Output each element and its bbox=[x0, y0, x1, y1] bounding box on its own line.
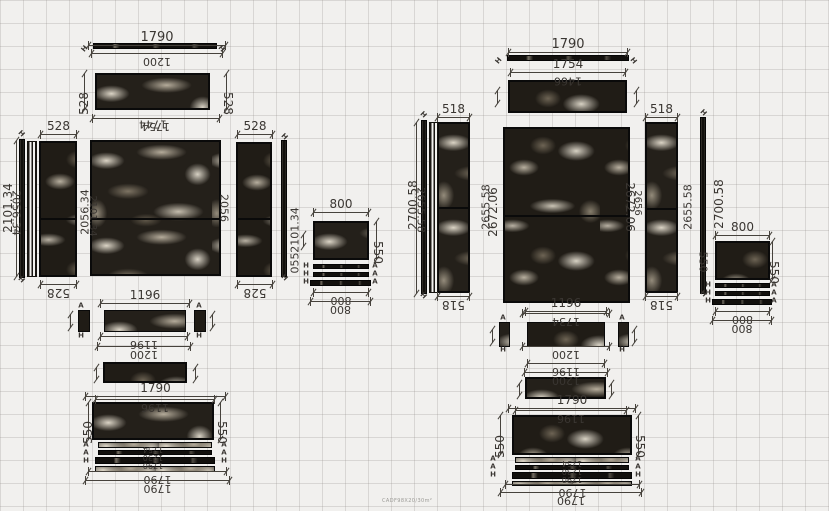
section-marker: A bbox=[83, 450, 88, 457]
dim-line bbox=[515, 410, 627, 411]
edge-strip[interactable] bbox=[313, 272, 369, 277]
section-marker: A bbox=[372, 271, 377, 278]
marble-panel[interactable] bbox=[39, 141, 77, 277]
dim-line bbox=[522, 346, 610, 347]
dimension-text: 1790 bbox=[562, 475, 582, 483]
dimension-text: 1466 bbox=[554, 76, 582, 87]
dim-line bbox=[500, 492, 642, 493]
dimension-tick-v bbox=[199, 314, 225, 328]
dim-line bbox=[524, 372, 608, 373]
dimension-text: 1230 bbox=[143, 453, 163, 461]
dimension-label: 518 bbox=[625, 298, 698, 311]
dimension-label: 528 bbox=[20, 120, 97, 133]
dimension-h: 528 bbox=[40, 121, 77, 149]
dimension-label: 528 bbox=[217, 120, 293, 133]
dimension-label: 1790 bbox=[65, 482, 250, 495]
dim-line bbox=[100, 303, 190, 304]
section-marker: H bbox=[221, 458, 227, 465]
section-marker: H bbox=[490, 472, 496, 479]
dimension-v: 528 bbox=[213, 73, 239, 110]
dimension-tick-v bbox=[506, 383, 532, 396]
dimension-h: 1196 bbox=[95, 386, 215, 414]
dim-line bbox=[97, 346, 191, 347]
section-marker: H bbox=[303, 263, 309, 270]
dimension-text: 550 bbox=[698, 252, 709, 273]
section-marker: A bbox=[372, 279, 377, 286]
dim-line bbox=[95, 399, 215, 400]
section-marker: H bbox=[635, 472, 641, 479]
section-marker: A bbox=[83, 442, 88, 449]
marble-panel[interactable] bbox=[236, 142, 272, 277]
dimension-h: 528 bbox=[40, 271, 77, 299]
dimension-v: 550 bbox=[363, 221, 389, 260]
dimension-text: 1744 bbox=[139, 119, 167, 130]
edge-strip[interactable] bbox=[715, 283, 770, 288]
section-marker: H bbox=[705, 282, 711, 289]
watermark-text: CADF98X20/30m² bbox=[382, 498, 432, 504]
dimension-text: 2672.06 bbox=[487, 187, 499, 237]
panel-joint bbox=[504, 215, 629, 217]
section-marker: A bbox=[196, 303, 201, 310]
dimension-text: 2101.34 bbox=[87, 195, 97, 236]
dim-tick bbox=[632, 339, 638, 347]
dimension-text: 2056.34 bbox=[11, 190, 22, 236]
section-marker: H bbox=[500, 347, 506, 354]
dim-line bbox=[313, 212, 369, 213]
dim-line bbox=[510, 72, 626, 73]
section-marker: A bbox=[771, 290, 776, 297]
panel-joint bbox=[646, 208, 677, 210]
section-marker: H bbox=[83, 458, 89, 465]
edge-strip[interactable] bbox=[429, 122, 438, 293]
section-marker: A bbox=[78, 303, 83, 310]
dimension-text: 2656 bbox=[632, 190, 642, 215]
dim-tick bbox=[490, 339, 496, 347]
section-marker: A bbox=[619, 315, 624, 322]
dimension-tick-v bbox=[182, 367, 208, 380]
dimension-text: 1790 bbox=[143, 461, 163, 469]
section-marker: H bbox=[78, 333, 84, 340]
dim-line bbox=[645, 296, 678, 297]
panel-joint bbox=[40, 218, 76, 220]
dimension-v: 550 bbox=[487, 415, 513, 455]
dimension-h: 528 bbox=[237, 271, 273, 299]
dimension-text: 2101.34 bbox=[290, 207, 301, 253]
dimension-h: 1200 bbox=[524, 359, 608, 387]
dim-tick bbox=[68, 324, 74, 332]
dimension-label: 800 bbox=[290, 303, 391, 316]
dimension-h: 518 bbox=[437, 283, 470, 311]
dimension-tick-v bbox=[479, 329, 505, 343]
section-marker: A bbox=[635, 456, 640, 463]
dimension-h: 800 bbox=[712, 307, 772, 335]
dimension-h: 800 bbox=[313, 199, 369, 227]
section-marker: A bbox=[500, 315, 505, 322]
dimension-label: 518 bbox=[417, 298, 490, 311]
section-marker: A bbox=[490, 464, 495, 471]
dimension-v: 550 bbox=[75, 402, 101, 440]
section-marker: A bbox=[372, 263, 377, 270]
dim-line bbox=[40, 134, 77, 135]
dim-line bbox=[522, 313, 610, 314]
dim-line bbox=[645, 117, 678, 118]
dim-tick bbox=[495, 100, 501, 108]
dimension-tick-v bbox=[57, 314, 83, 328]
dimension-text: 1754 bbox=[143, 445, 163, 453]
dimension-h: 1200 bbox=[97, 333, 191, 361]
dimension-h: 1196 bbox=[100, 290, 190, 318]
dimension-h: 1734 bbox=[522, 300, 610, 328]
dimension-v: 528 bbox=[71, 73, 97, 110]
drawing-canvas: CADF98X20/30m² 1790120017545285285285288… bbox=[0, 0, 829, 511]
section-marker: H bbox=[196, 333, 202, 340]
dimension-label: 1754 bbox=[490, 58, 646, 71]
dimension-h: 800 bbox=[310, 288, 371, 316]
section-marker: H bbox=[705, 298, 711, 305]
dim-tick bbox=[210, 324, 216, 332]
section-marker: A bbox=[771, 298, 776, 305]
marble-panel[interactable] bbox=[503, 127, 630, 303]
dimension-label: 1200 bbox=[71, 55, 243, 68]
dim-line bbox=[715, 235, 770, 236]
section-marker: H bbox=[303, 279, 309, 286]
dim-line bbox=[237, 284, 273, 285]
dimension-tick-v bbox=[484, 90, 510, 104]
dimension-h: 518 bbox=[645, 283, 678, 311]
dim-line bbox=[712, 320, 772, 321]
section-marker: A bbox=[771, 282, 776, 289]
dimension-label: 1790 bbox=[480, 494, 662, 507]
dimension-text: 2655.58 bbox=[683, 184, 694, 230]
dim-line bbox=[437, 117, 470, 118]
dimension-text: 055 bbox=[290, 253, 301, 274]
dim-line bbox=[437, 296, 470, 297]
section-marker: H bbox=[705, 290, 711, 297]
dimension-v: 550 bbox=[759, 241, 785, 280]
panel-joint bbox=[91, 218, 220, 220]
dimension-label: 528 bbox=[217, 286, 293, 299]
panel-joint bbox=[237, 218, 271, 220]
dimension-text: 2655.58 bbox=[416, 187, 427, 233]
marble-panel[interactable] bbox=[90, 140, 221, 276]
dimension-label: 1734 bbox=[502, 315, 630, 328]
dimension-label: 1196 bbox=[80, 289, 210, 302]
dimension-label: 528 bbox=[77, 92, 91, 115]
dimension-h: 1200 bbox=[91, 40, 223, 68]
section-marker: H bbox=[303, 271, 309, 278]
dimension-label: 800 bbox=[692, 322, 792, 335]
dimension-v: 550 bbox=[625, 415, 651, 455]
dimension-text: 1230 bbox=[562, 467, 582, 475]
dimension-tick-v bbox=[621, 329, 647, 343]
section-marker: A bbox=[221, 442, 226, 449]
marble-panel[interactable] bbox=[437, 122, 470, 293]
dim-line bbox=[91, 53, 223, 54]
edge-strip[interactable] bbox=[313, 264, 369, 269]
dimension-h: 1790 bbox=[85, 467, 230, 495]
dimension-label: 528 bbox=[221, 92, 235, 115]
dimension-h: 1196 bbox=[515, 397, 627, 425]
dimension-h: 518 bbox=[645, 104, 678, 132]
dimension-label: 1790 bbox=[488, 38, 648, 51]
marble-panel[interactable] bbox=[103, 362, 187, 383]
dim-line bbox=[237, 134, 273, 135]
dimension-tick-v bbox=[623, 90, 649, 104]
dimension-h: 528 bbox=[237, 121, 273, 149]
section-marker: A bbox=[221, 450, 226, 457]
dimension-text: 2700.58 bbox=[713, 179, 725, 229]
dimension-label: 800 bbox=[695, 221, 790, 234]
dim-line bbox=[310, 301, 371, 302]
edge-strip[interactable] bbox=[281, 140, 287, 277]
dim-line bbox=[40, 284, 77, 285]
dimension-tick-v bbox=[83, 367, 109, 380]
dim-line bbox=[508, 52, 628, 53]
dimension-text: 2056 bbox=[219, 194, 230, 222]
dimension-text: 1754 bbox=[562, 459, 582, 467]
panel-joint bbox=[438, 207, 469, 209]
dimension-v: 550 bbox=[207, 402, 233, 440]
section-marker: A bbox=[635, 464, 640, 471]
edge-strip[interactable] bbox=[715, 291, 770, 296]
dimension-label: 1200 bbox=[77, 348, 211, 361]
section-marker: H bbox=[619, 347, 625, 354]
dimension-h: 518 bbox=[437, 104, 470, 132]
dimension-label: 800 bbox=[293, 198, 389, 211]
marble-panel[interactable] bbox=[645, 122, 678, 293]
dim-line bbox=[85, 480, 230, 481]
section-marker: A bbox=[490, 456, 495, 463]
dimension-tick-v bbox=[598, 383, 624, 396]
dimension-label: 550 bbox=[371, 241, 385, 264]
